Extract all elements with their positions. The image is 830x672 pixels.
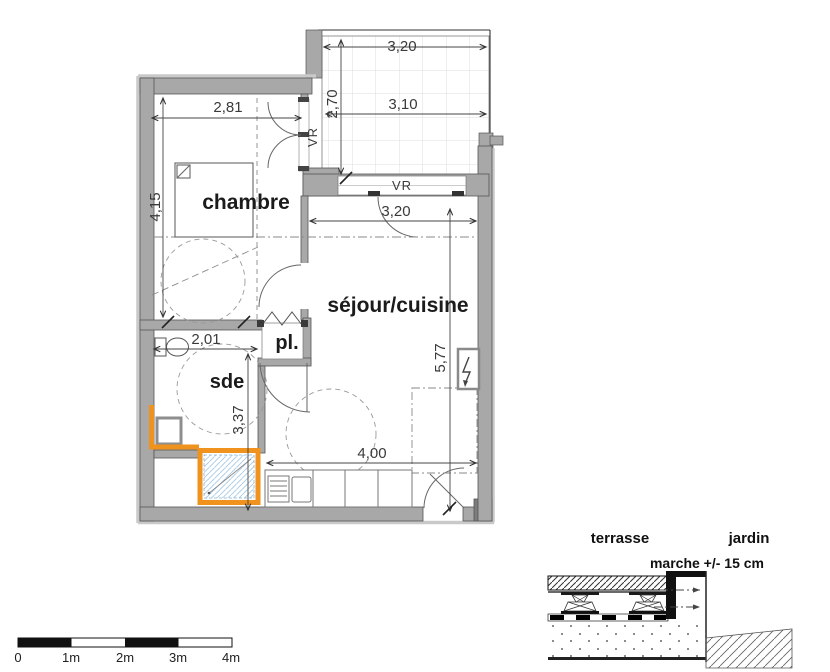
kitchen-sink (268, 476, 311, 502)
scale-label-4m: 4m (222, 650, 240, 665)
garden-soil (706, 629, 792, 668)
wall-bottom-left (140, 507, 423, 521)
chambre-door-arc (259, 265, 301, 307)
scale-label-1m: 1m (62, 650, 80, 665)
deck-pedestal (629, 592, 667, 615)
kerb (666, 576, 676, 619)
dim-terrace-top: 3,20 (387, 38, 416, 55)
dim-kitchen-run: 4,00 (357, 445, 386, 462)
kitchen-counter (265, 470, 412, 507)
wall-chambre-top (140, 78, 312, 94)
room-label-sde: sde (210, 371, 244, 393)
dim-terrace-inner: 3,10 (388, 96, 417, 113)
washbasin (157, 418, 181, 444)
wall-washbasin-nook (154, 450, 198, 458)
turning-circle (286, 389, 376, 479)
vr-label-sejour: VR (392, 178, 412, 193)
turning-circle (161, 239, 245, 323)
toilet (155, 338, 189, 356)
section-label-jardin: jardin (728, 530, 770, 547)
scale-bar: 0 1m 2m 3m 4m (14, 638, 240, 665)
wall-right (478, 146, 492, 521)
furniture-zone-dashed (412, 388, 477, 473)
dim-chambre-length: 4,15 (147, 192, 164, 221)
terrace-deck-slab (548, 576, 667, 590)
section-step-note: marche +/- 15 cm (650, 555, 764, 571)
deck-pedestal (561, 592, 599, 615)
section-label-terrasse: terrasse (591, 530, 649, 547)
wall-sde-partition (258, 366, 265, 453)
scale-label-3m: 3m (169, 650, 187, 665)
dim-sejour-width: 3,20 (381, 203, 410, 220)
sde-door-arc (260, 363, 310, 412)
door-swing-arc (268, 102, 301, 135)
wall-left (140, 78, 154, 521)
scale-label-0: 0 (14, 650, 21, 665)
concrete-base (548, 621, 706, 657)
room-label-chambre: chambre (202, 191, 290, 214)
entry-door-leaf (430, 474, 464, 508)
floor-plan-svg: chambre séjour/cuisine sde pl. 3,20 3,10… (0, 0, 830, 672)
dim-sde-length: 3,37 (230, 405, 247, 434)
vr-label-chambre: VR (305, 127, 320, 147)
wall-chambre-right (301, 196, 308, 265)
room-label-placard: pl. (275, 332, 298, 354)
room-label-sejour: séjour/cuisine (327, 294, 468, 317)
dim-sde-width: 2,01 (191, 331, 220, 348)
dim-chambre-width: 2,81 (213, 99, 242, 116)
door-swing-arc (268, 135, 301, 168)
floor-plan-page: chambre séjour/cuisine sde pl. 3,20 3,10… (0, 0, 830, 672)
scale-label-2m: 2m (116, 650, 134, 665)
dim-terrace-depth: 2,70 (324, 89, 341, 118)
dim-sejour-length: 5,77 (432, 343, 449, 372)
terrace-section-detail: terrasse jardin marche +/- 15 cm (548, 530, 792, 668)
electrical-panel-icon (458, 349, 479, 389)
